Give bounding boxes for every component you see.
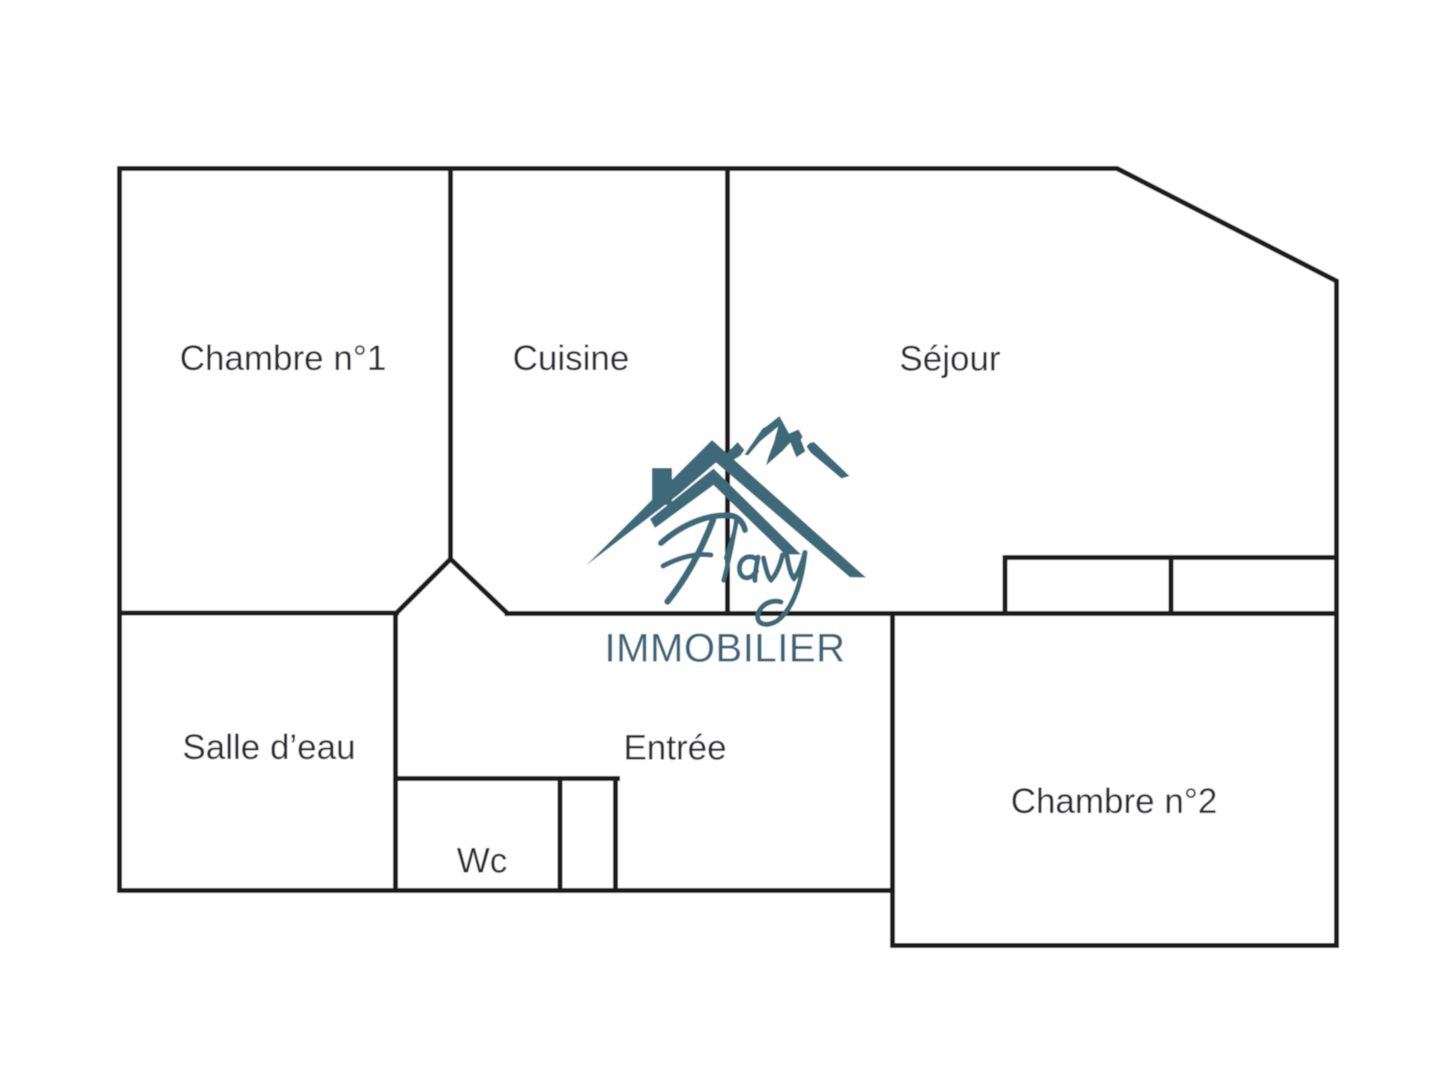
svg-text:Chambre n°2: Chambre n°2: [1011, 782, 1218, 821]
svg-text:Salle d’eau: Salle d’eau: [182, 728, 355, 767]
svg-text:Chambre n°1: Chambre n°1: [180, 339, 387, 378]
svg-text:IMMOBILIER: IMMOBILIER: [604, 627, 845, 671]
svg-text:Séjour: Séjour: [899, 340, 1001, 379]
svg-text:Entrée: Entrée: [623, 729, 726, 768]
svg-text:Wc: Wc: [457, 842, 508, 881]
svg-text:Cuisine: Cuisine: [513, 339, 630, 378]
